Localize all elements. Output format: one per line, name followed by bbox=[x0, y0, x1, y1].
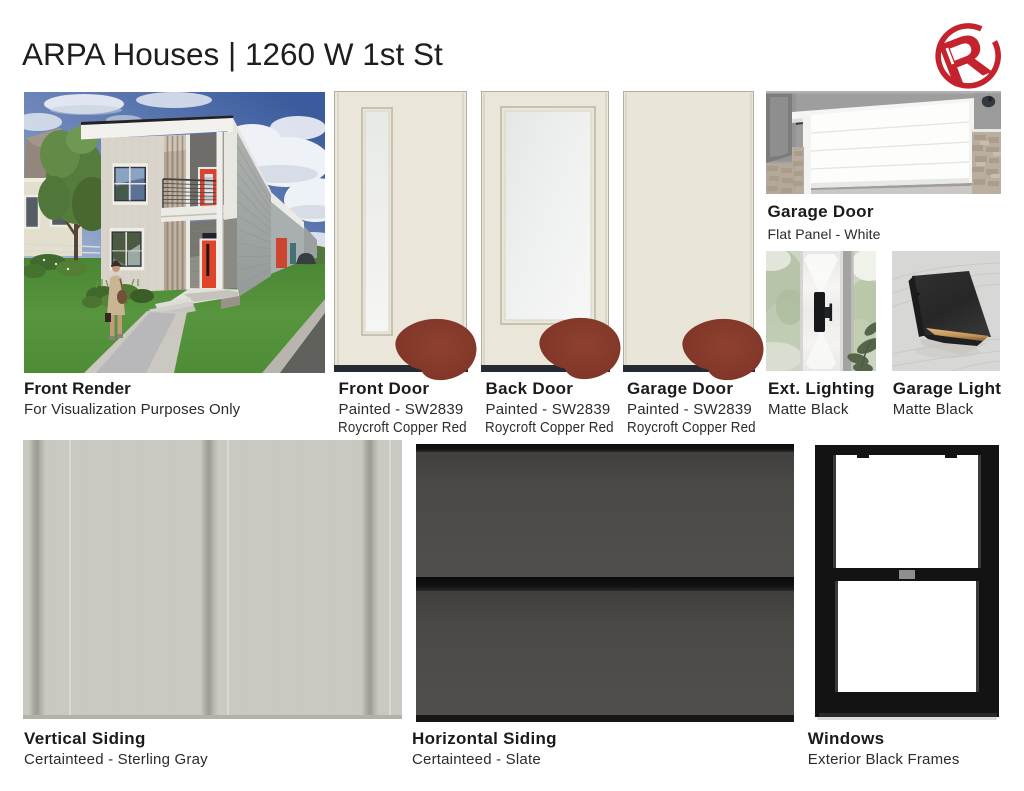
svg-text:R: R bbox=[930, 20, 999, 94]
